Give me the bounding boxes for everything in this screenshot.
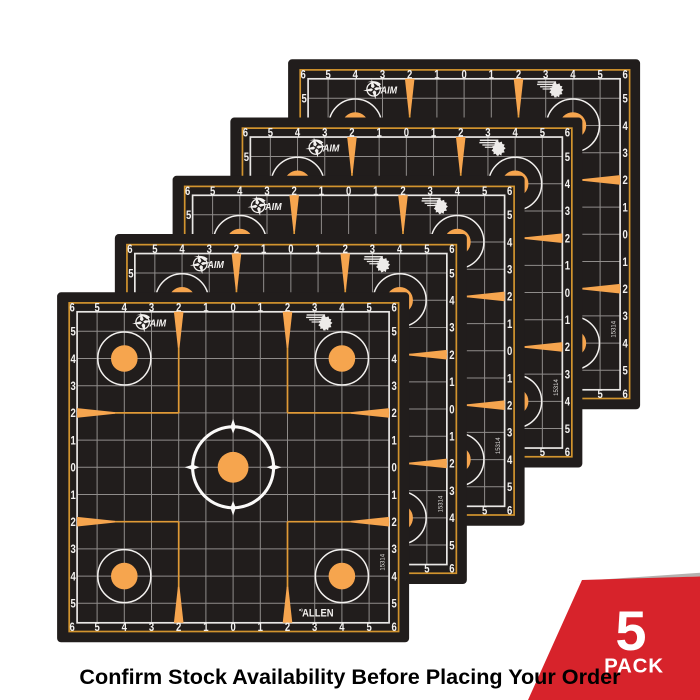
- svg-text:Confirm Stock Availability Bef: Confirm Stock Availability Before Placin…: [79, 664, 621, 689]
- svg-text:5: 5: [615, 599, 646, 662]
